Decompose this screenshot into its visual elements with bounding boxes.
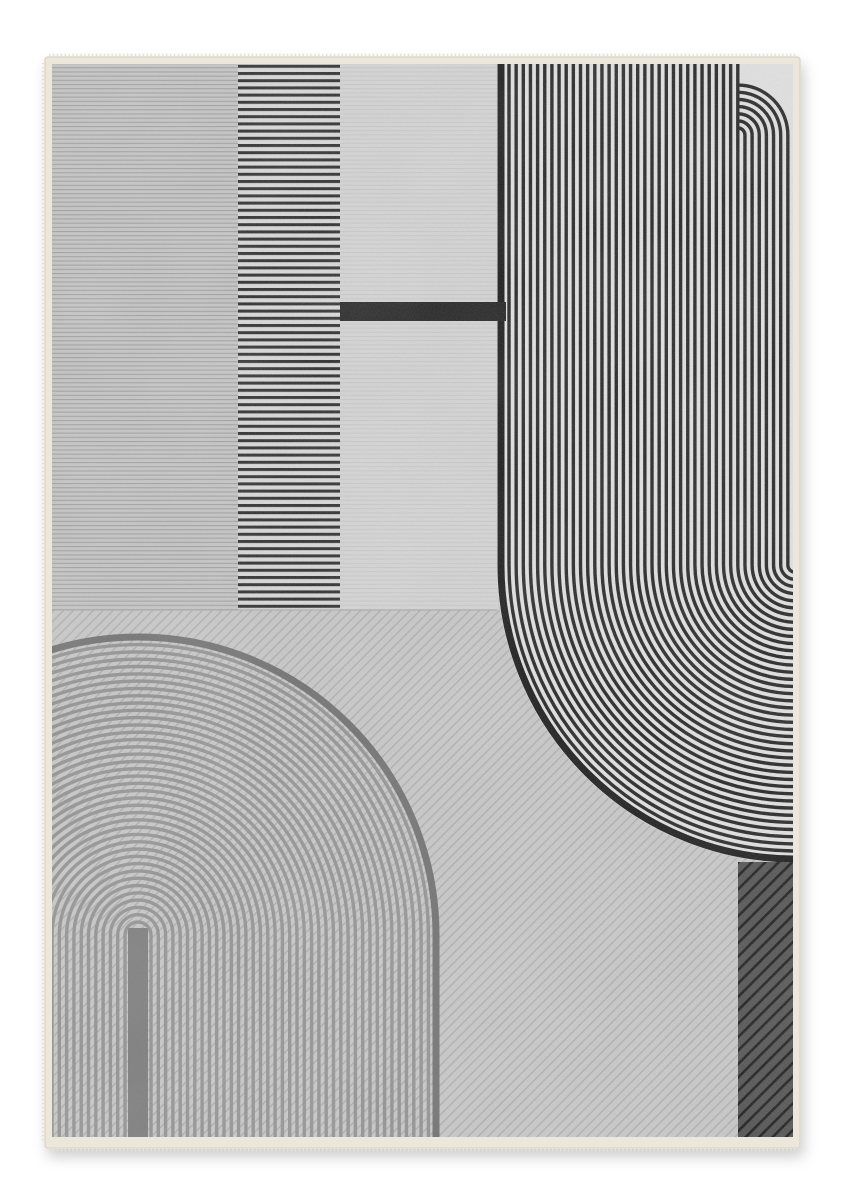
arch-center-bar [128, 928, 148, 1137]
accent-bar [340, 302, 506, 321]
rug-product-photo [0, 0, 846, 1200]
upper-left-panel [52, 64, 238, 610]
upper-middle-panel [340, 64, 498, 610]
horizontal-stripe-band [238, 64, 340, 610]
upper-section [52, 64, 498, 610]
corner-block [738, 862, 793, 1137]
rug-svg [0, 0, 846, 1200]
